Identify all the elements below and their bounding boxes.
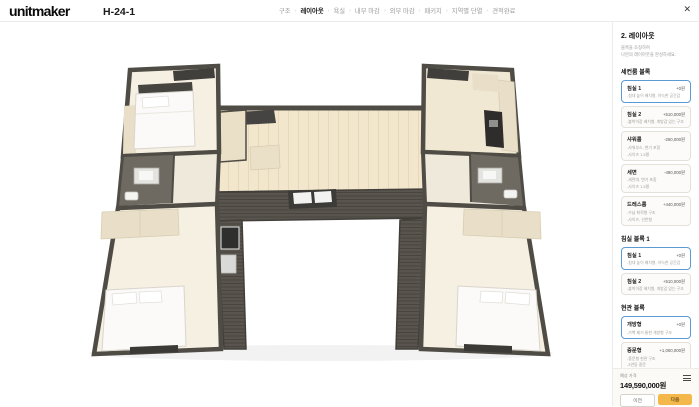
nav-layout[interactable]: 레이아웃 xyxy=(297,6,326,15)
nav-interior-finish[interactable]: 내부 마감 xyxy=(352,6,383,15)
module-bedroom-top-left xyxy=(123,66,219,156)
price-footer: 예상 가격 149,590,000원 이전 다음 xyxy=(612,368,699,406)
menu-icon[interactable] xyxy=(683,375,691,383)
next-button[interactable]: 다음 xyxy=(658,394,692,405)
step-description: 블록을 조정하여 나만의 레이아웃을 완성하세요. xyxy=(621,45,691,59)
card-entrance-open-type[interactable]: 개방형 +0원 -가벽 제거 통한 개방형 구조 xyxy=(621,316,691,339)
center-living-area xyxy=(217,108,425,196)
module-bath-left xyxy=(118,152,219,208)
module-bedroom-bottom-left xyxy=(94,204,221,354)
card-secondroom-bedroom-2[interactable]: 침실 2 +510,000원 -붙박이장 배치형, 개방감 있는 구조 xyxy=(621,106,691,129)
floorplan-canvas xyxy=(0,21,612,406)
estimated-price: 149,590,000원 xyxy=(620,380,692,391)
step-title: 2. 레이아웃 xyxy=(621,31,691,41)
card-bedroomblock1-bedroom-2[interactable]: 침실 2 +510,000원 -붙박이장 배치형, 개방감 있는 구조 xyxy=(621,273,691,296)
floorplan-3d-view[interactable] xyxy=(78,52,565,364)
module-kitchen-top-right xyxy=(423,66,519,156)
nav-bathroom[interactable]: 욕실 xyxy=(330,6,348,15)
card-secondroom-bedroom-1[interactable]: 침실 1 +0원 -침대 높이 배치형, 아늑한 공간감 xyxy=(621,80,691,103)
step-nav: 구조 › 레이아웃 › 욕실 › 내부 마감 › 외부 마감 › 패키지 › 지… xyxy=(276,0,518,21)
card-secondroom-shower[interactable]: 샤워룸 -260,000원 -샤워부스, 변기 포함 -사이즈 1.5평 xyxy=(621,131,691,161)
top-bar: unitmaker H-24-1 구조 › 레이아웃 › 욕실 › 내부 마감 … xyxy=(0,0,699,22)
module-bedroom-bottom-right xyxy=(421,204,548,354)
section-title-entrance-block: 현관 블록 xyxy=(621,303,691,312)
front-deck xyxy=(212,189,430,349)
section-title-secondroom: 세컨룸 블록 xyxy=(621,67,691,76)
layout-options-panel: 2. 레이아웃 블록을 조정하여 나만의 레이아웃을 완성하세요. 세컨룸 블록… xyxy=(612,21,699,406)
model-title: H-24-1 xyxy=(103,6,135,18)
nav-structure[interactable]: 구조 xyxy=(276,6,294,15)
card-bedroomblock1-bedroom-1[interactable]: 침실 1 +0원 -침대 높이 배치형, 아늑한 공간감 xyxy=(621,247,691,270)
nav-regional-insulation[interactable]: 지역별 단열 xyxy=(449,6,486,15)
module-bath-right xyxy=(423,152,524,208)
nav-exterior-finish[interactable]: 외부 마감 xyxy=(387,6,418,15)
section-title-bedroom-block-1: 침실 블록 1 xyxy=(621,234,691,243)
app-logo: unitmaker xyxy=(9,3,70,19)
card-secondroom-dressroom[interactable]: 드레스룸 +440,000원 -수납 최적형 구조 -사이즈, 선반형 xyxy=(621,196,691,226)
nav-quote-complete[interactable]: 견적완료 xyxy=(489,6,518,15)
card-secondroom-washstand[interactable]: 세면 -490,000원 -세면대, 변기 포함 -사이즈 1.5평 xyxy=(621,164,691,194)
prev-button[interactable]: 이전 xyxy=(620,394,655,407)
price-label: 예상 가격 xyxy=(620,373,692,379)
nav-package[interactable]: 패키지 xyxy=(421,6,444,15)
close-icon[interactable]: ✕ xyxy=(683,5,691,14)
